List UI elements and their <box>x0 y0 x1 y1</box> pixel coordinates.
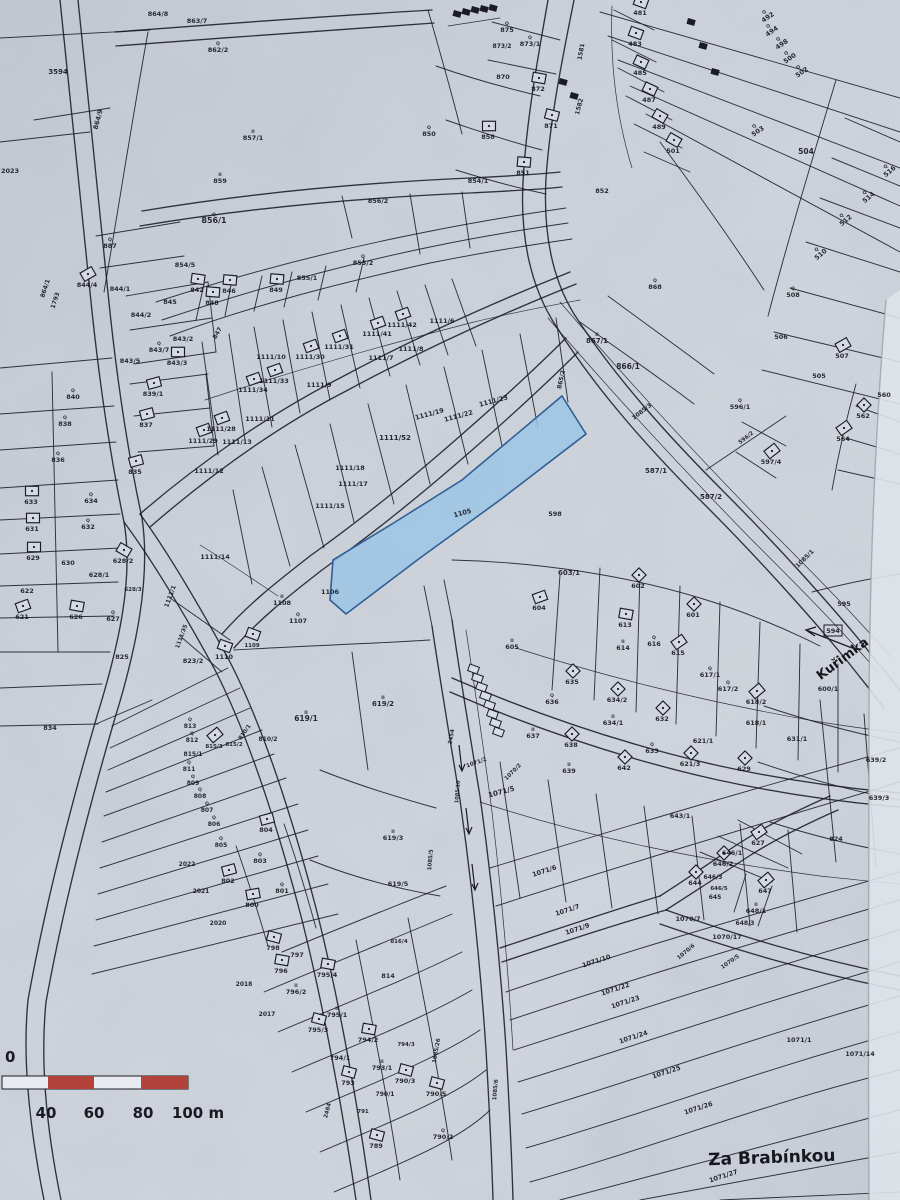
parcel-label: 1108 <box>273 599 292 607</box>
parcel-label: 836 <box>51 456 65 464</box>
parcel-label: 629 <box>26 554 40 562</box>
parcel-label: 621/3 <box>680 760 700 768</box>
landuse-symbol: Q <box>296 612 300 618</box>
parcel-label: 803 <box>253 857 267 865</box>
parcel-label: 875 <box>500 26 514 34</box>
parcel-label: 621 <box>15 613 29 621</box>
parcel-label: 619/5 <box>388 880 409 888</box>
parcel-label: 794/2 <box>358 1036 378 1044</box>
parcel-label: 815/1 <box>184 751 203 758</box>
landuse-symbol: Q <box>108 237 112 243</box>
parcel-label: 862/2 <box>208 46 228 54</box>
landuse-symbol: Q <box>550 693 554 699</box>
parcel-label: 1111/11 <box>245 415 275 423</box>
landuse-symbol: Q <box>361 254 365 260</box>
landuse-symbol: Q <box>726 680 730 686</box>
parcel-label: 617/2 <box>718 685 738 693</box>
parcel-label: 481 <box>633 9 647 17</box>
parcel-label: 1111/13 <box>222 438 252 446</box>
parcel-label: 1111/33 <box>259 377 289 385</box>
parcel-label: 596/1 <box>730 403 751 411</box>
parcel-label: 600/1 <box>818 685 839 693</box>
scale-tick-label: 60 <box>84 1104 105 1122</box>
parcel-label: 634 <box>84 497 98 505</box>
parcel-label: 638 <box>564 741 578 749</box>
landuse-symbol: II <box>621 639 625 645</box>
landuse-symbol: Q <box>188 717 192 723</box>
parcel-label: 616 <box>647 640 661 648</box>
parcel-label: 647 <box>758 887 772 895</box>
parcel-label: 849 <box>269 286 283 294</box>
parcel-label: 794/1 <box>330 1054 351 1062</box>
landuse-symbol: Q <box>191 774 195 780</box>
parcel-label: 1111/12 <box>194 467 224 475</box>
parcel-label: 1071/1 <box>787 1036 812 1044</box>
parcel-label: 1111/52 <box>379 434 411 442</box>
scale-tick-label: 80 <box>133 1104 154 1122</box>
parcel-label: 1111/8 <box>399 345 424 353</box>
landuse-symbol: II <box>391 829 395 835</box>
parcel-label: 843/5 <box>120 357 141 365</box>
parcel-label: 1106 <box>321 588 340 596</box>
parcel-label: 2018 <box>236 981 253 988</box>
parcel-label: 1111/7 <box>369 354 394 362</box>
parcel-label: 844/2 <box>131 311 151 319</box>
parcel-label: 871 <box>544 122 558 130</box>
parcel-label: 646/2 <box>713 860 733 868</box>
parcel-label: 594 <box>826 627 840 635</box>
parcel-label: 796/2 <box>286 988 306 996</box>
parcel-label: 615 <box>671 649 685 657</box>
parcel-label: 602 <box>631 582 645 590</box>
parcel-label: 634/2 <box>607 696 627 704</box>
parcel-label: 598 <box>548 510 562 518</box>
parcel-label: 485 <box>633 69 647 77</box>
parcel-label: 636 <box>545 698 559 706</box>
cadastral-map-image: 35942023864/9864/8863/7859II857/1II862/2… <box>0 0 900 1200</box>
parcel-label: 808 <box>194 793 207 800</box>
parcel-label: 648/1 <box>746 907 767 915</box>
parcel-label: 863/7 <box>187 17 207 25</box>
parcel-label: 489 <box>652 123 666 131</box>
parcel-label: 1111/6 <box>430 317 455 325</box>
parcel-label: 639/2 <box>866 756 886 764</box>
parcel-label: 618/2 <box>746 698 766 706</box>
landuse-symbol: Q <box>111 610 115 616</box>
parcel-label: 601 <box>686 611 700 619</box>
landuse-symbol: Q <box>71 388 75 394</box>
landuse-symbol: Q <box>205 801 209 807</box>
landuse-symbol: II <box>611 714 615 720</box>
parcel-label: 605 <box>505 643 519 651</box>
parcel-label: 1111/34 <box>238 386 268 394</box>
landuse-symbol: Q <box>86 518 90 524</box>
parcel-label: 790/3 <box>395 1077 415 1085</box>
landuse-symbol: Q <box>280 882 284 888</box>
parcel-label: 627 <box>106 615 120 623</box>
parcel-label: 816/4 <box>390 939 407 945</box>
parcel-label: 562 <box>856 412 870 420</box>
parcel-label: 868 <box>648 283 662 291</box>
parcel-label: 790/5 <box>426 1090 447 1098</box>
parcel-label: 796 <box>274 967 288 975</box>
parcel-label: 639/3 <box>869 794 889 802</box>
parcel-label: 1070/17 <box>712 933 742 941</box>
parcel-label: 789 <box>369 1142 383 1150</box>
parcel-label: 864/8 <box>148 10 169 18</box>
parcel-label: 618/1 <box>746 719 767 727</box>
parcel-label: 802 <box>221 877 235 885</box>
parcel-label: 507 <box>835 352 849 360</box>
parcel-label: 852 <box>595 187 609 195</box>
parcel-label: 1111/31 <box>324 343 354 351</box>
parcel-label: 3594 <box>48 68 68 76</box>
parcel-label: 2021 <box>193 888 210 895</box>
parcel-label: 644 <box>688 879 702 887</box>
landuse-symbol: Q <box>190 731 194 737</box>
parcel-label: 1111/15 <box>315 502 345 510</box>
landuse-symbol: Q <box>258 852 262 858</box>
landuse-symbol: Q <box>187 760 191 766</box>
parcel-label: 810/2 <box>259 736 278 743</box>
parcel-label: 795/3 <box>308 1026 328 1034</box>
parcel-label: 597/4 <box>761 458 782 466</box>
landuse-symbol: II <box>280 594 284 600</box>
parcel-label: 2023 <box>1 167 19 175</box>
parcel-label: 1111/42 <box>387 321 417 329</box>
landuse-symbol: II <box>510 638 514 644</box>
scale-tick-label: 40 <box>36 1104 57 1122</box>
parcel-label: 790/2 <box>433 1133 453 1141</box>
parcel-label: 629 <box>737 765 751 773</box>
parcel-label: 628/2 <box>113 557 133 565</box>
landuse-symbol: II <box>218 172 222 178</box>
parcel-label: 2020 <box>210 920 227 927</box>
parcel-label: 806 <box>208 821 221 828</box>
parcel-label: 795/1 <box>327 1011 348 1019</box>
parcel-label: 645 <box>709 894 722 901</box>
parcel-label: 843/7 <box>149 346 169 354</box>
parcel-label: 619/2 <box>372 700 394 708</box>
parcel-label: 613 <box>618 621 632 629</box>
parcel-label: 805 <box>215 842 228 849</box>
landuse-symbol: II <box>251 129 255 135</box>
parcel-label: 859 <box>213 177 227 185</box>
parcel-label: 791 <box>357 1109 369 1115</box>
parcel-label: 873/1 <box>520 40 541 48</box>
parcel-label: 845 <box>163 298 177 306</box>
parcel-label: 815/2 <box>225 742 242 748</box>
parcel-label: 867/1 <box>586 337 608 345</box>
landuse-symbol: II <box>754 902 758 908</box>
parcel-label: 856/2 <box>368 197 388 205</box>
scale-tick-label: 100 m <box>172 1104 224 1122</box>
parcel-label: 633 <box>24 498 38 506</box>
parcel-label: 595 <box>837 600 851 608</box>
parcel-label: 798 <box>266 944 280 952</box>
parcel-label: 622 <box>20 587 34 595</box>
parcel-label: 587/2 <box>700 493 722 501</box>
parcel-label: 646/1 <box>722 849 743 857</box>
parcel-label: 1070/7 <box>676 915 701 923</box>
parcel-label: 843/2 <box>173 335 193 343</box>
landuse-symbol: Q <box>63 415 67 421</box>
landuse-symbol: II <box>381 695 385 701</box>
parcel-label: 844/1 <box>110 285 131 293</box>
parcel-label: 643/1 <box>670 812 691 820</box>
parcel-label: 2022 <box>179 861 196 868</box>
parcel-label: 639 <box>562 767 576 775</box>
parcel-label: 1107 <box>289 617 307 625</box>
parcel-label: 587/1 <box>645 467 667 475</box>
parcel-label: 619/3 <box>383 834 403 842</box>
parcel-label: 564 <box>836 435 850 443</box>
landuse-symbol: Q <box>219 836 223 842</box>
parcel-label: 797 <box>290 951 304 959</box>
parcel-label: 840 <box>66 393 80 401</box>
landuse-symbol: Q <box>738 398 742 404</box>
parcel-label: 795/4 <box>317 971 338 979</box>
parcel-label: 1111/14 <box>200 553 230 561</box>
parcel-label: 1109 <box>244 643 259 649</box>
parcel-label: 628/3 <box>124 587 141 593</box>
landuse-symbol: Q <box>791 286 795 292</box>
parcel-label: 824 <box>829 835 843 843</box>
landuse-symbol: Q <box>89 492 93 498</box>
parcel-label: 637 <box>526 732 540 740</box>
landuse-symbol: II <box>294 983 298 989</box>
landuse-symbol: Q <box>505 21 509 27</box>
parcel-label: 1111/10 <box>256 353 286 361</box>
parcel-label: 505 <box>812 372 826 380</box>
landuse-symbol: Q <box>427 125 431 131</box>
parcel-label: 870 <box>496 73 510 81</box>
landuse-symbol: II <box>595 332 599 338</box>
parcel-label: 804 <box>259 826 273 834</box>
parcel-label: 855/2 <box>353 259 373 267</box>
parcel-label: 487 <box>642 96 656 104</box>
landuse-symbol: Q <box>157 341 161 347</box>
landuse-symbol: Q <box>212 815 216 821</box>
parcel-label: 632 <box>655 715 669 723</box>
scale-tick-label: 0 <box>5 1048 15 1066</box>
parcel-label: 508 <box>786 291 800 299</box>
landuse-symbol: II <box>531 727 535 733</box>
parcel-label: 1111/17 <box>338 480 368 488</box>
parcel-label: 628/1 <box>89 571 110 579</box>
parcel-label: 839/1 <box>143 390 164 398</box>
landuse-symbol: II <box>304 710 308 716</box>
parcel-label: 642 <box>617 764 631 772</box>
parcel-label: 504 <box>798 147 814 156</box>
parcel-label: 634/1 <box>603 719 624 727</box>
parcel-label: 823/2 <box>183 657 203 665</box>
parcel-label: 621/1 <box>693 737 714 745</box>
parcel-label: 2017 <box>259 1011 276 1018</box>
parcel-label: 631 <box>25 525 39 533</box>
landuse-symbol: Q <box>56 451 60 457</box>
parcel-label: 626 <box>69 613 83 621</box>
parcel-label: 1110 <box>215 653 234 661</box>
parcel-label: 815/3 <box>205 744 222 750</box>
parcel-label: 825 <box>115 653 129 661</box>
parcel-label: 851 <box>516 169 530 177</box>
parcel-label: 812 <box>186 737 199 744</box>
parcel-label: 800 <box>245 901 259 909</box>
landuse-symbol: Q <box>216 41 220 47</box>
parcel-label: 1111/30 <box>295 353 325 361</box>
parcel-label: 838 <box>58 420 72 428</box>
landuse-symbol: Q <box>708 666 712 672</box>
parcel-label: 631/1 <box>787 735 808 743</box>
parcel-label: 801 <box>275 887 289 895</box>
parcel-label: 842 <box>190 286 204 294</box>
parcel-label: 1071/14 <box>845 1050 875 1058</box>
parcel-label: 1111/41 <box>362 330 392 338</box>
parcel-label: 633 <box>645 747 659 755</box>
parcel-label: 617/1 <box>700 671 721 679</box>
parcel-label: 854/1 <box>468 177 489 185</box>
parcel-label: 627 <box>751 839 765 847</box>
parcel-label: 809 <box>187 780 200 787</box>
parcel-label: 858 <box>481 133 495 141</box>
parcel-label: 850 <box>422 130 436 138</box>
parcel-label: 855/1 <box>297 274 318 282</box>
parcel-label: 1111/29 <box>188 437 218 445</box>
landuse-symbol: Q <box>441 1128 445 1134</box>
parcel-label: 1111/28 <box>206 425 236 433</box>
landuse-symbol: Q <box>198 787 202 793</box>
parcel-label: 646/3 <box>704 874 723 881</box>
parcel-label: 837 <box>139 421 153 429</box>
parcel-label: 794/3 <box>397 1042 414 1048</box>
parcel-label: 648/3 <box>736 920 755 927</box>
landuse-symbol: Q <box>650 742 654 748</box>
parcel-label: 872 <box>531 85 545 93</box>
parcel-label: 506 <box>774 333 788 341</box>
landuse-symbol: Q <box>653 278 657 284</box>
parcel-label: 501 <box>666 147 680 155</box>
parcel-label: 848 <box>205 299 219 307</box>
landuse-symbol: II <box>335 1006 339 1012</box>
landuse-symbol: Q <box>652 635 656 641</box>
parcel-label: 844/4 <box>77 281 98 289</box>
parcel-label: 632 <box>81 523 95 531</box>
landuse-symbol: Q <box>212 212 216 218</box>
parcel-label: 814 <box>381 972 395 980</box>
parcel-label: 813 <box>184 723 197 730</box>
parcel-label: 790/1 <box>376 1091 395 1098</box>
parcel-label: 866/1 <box>616 362 640 371</box>
parcel-label: 887 <box>103 242 117 250</box>
parcel-label: 873/2 <box>493 43 512 50</box>
parcel-label: 834 <box>43 724 57 732</box>
parcel-label: 603/1 <box>558 569 580 577</box>
parcel-label: 811 <box>183 766 196 773</box>
parcel-label: 604 <box>532 604 546 612</box>
parcel-label: 793/1 <box>372 1064 393 1072</box>
landuse-symbol: II <box>380 1059 384 1065</box>
landuse-symbol: II <box>567 762 571 768</box>
parcel-label: 857/1 <box>243 134 264 142</box>
parcel-label: 483 <box>628 40 642 48</box>
landuse-symbol: Q <box>528 35 532 41</box>
parcel-label: 560 <box>877 391 891 399</box>
parcel-label: 846 <box>222 287 236 295</box>
cadastral-map: 35942023864/9864/8863/7859II857/1II862/2… <box>0 0 900 1200</box>
parcel-label: 807 <box>201 807 214 814</box>
parcel-label: 835 <box>128 468 142 476</box>
parcel-label: 1111/18 <box>335 464 365 472</box>
parcel-label: 646/5 <box>710 886 727 892</box>
parcel-label: 630 <box>61 559 75 567</box>
parcel-label: 635 <box>565 678 579 686</box>
parcel-label: 614 <box>616 644 630 652</box>
parcel-label: 854/5 <box>175 261 196 269</box>
parcel-label: 1111/9 <box>307 381 332 389</box>
parcel-label: 793 <box>341 1079 355 1087</box>
parcel-label: 843/3 <box>167 359 187 367</box>
